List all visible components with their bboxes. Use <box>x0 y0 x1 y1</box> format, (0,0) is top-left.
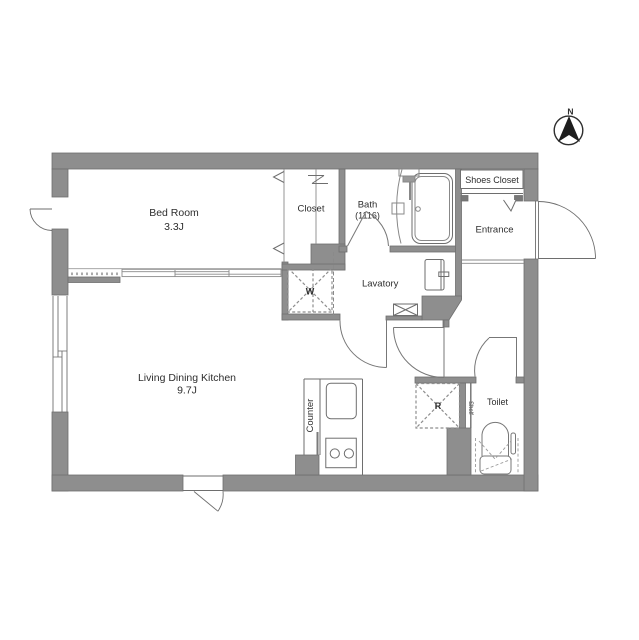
svg-text:N: N <box>567 107 573 117</box>
svg-text:Closet: Closet <box>298 204 325 215</box>
svg-text:Shoes Closet: Shoes Closet <box>465 175 519 185</box>
svg-text:Entrance: Entrance <box>475 225 513 236</box>
svg-text:3.3J: 3.3J <box>164 221 184 233</box>
svg-text:Counter: Counter <box>305 399 316 433</box>
svg-text:Lavatory: Lavatory <box>362 279 399 290</box>
svg-text:Bed Room: Bed Room <box>149 207 199 219</box>
svg-text:Shelf: Shelf <box>467 401 473 415</box>
svg-text:Toilet: Toilet <box>487 397 509 407</box>
svg-text:Living Dining Kitchen: Living Dining Kitchen <box>138 372 236 384</box>
svg-text:Bath: Bath <box>358 200 378 211</box>
svg-text:W: W <box>306 287 315 297</box>
svg-text:R: R <box>435 401 442 411</box>
svg-text:9.7J: 9.7J <box>177 385 197 397</box>
